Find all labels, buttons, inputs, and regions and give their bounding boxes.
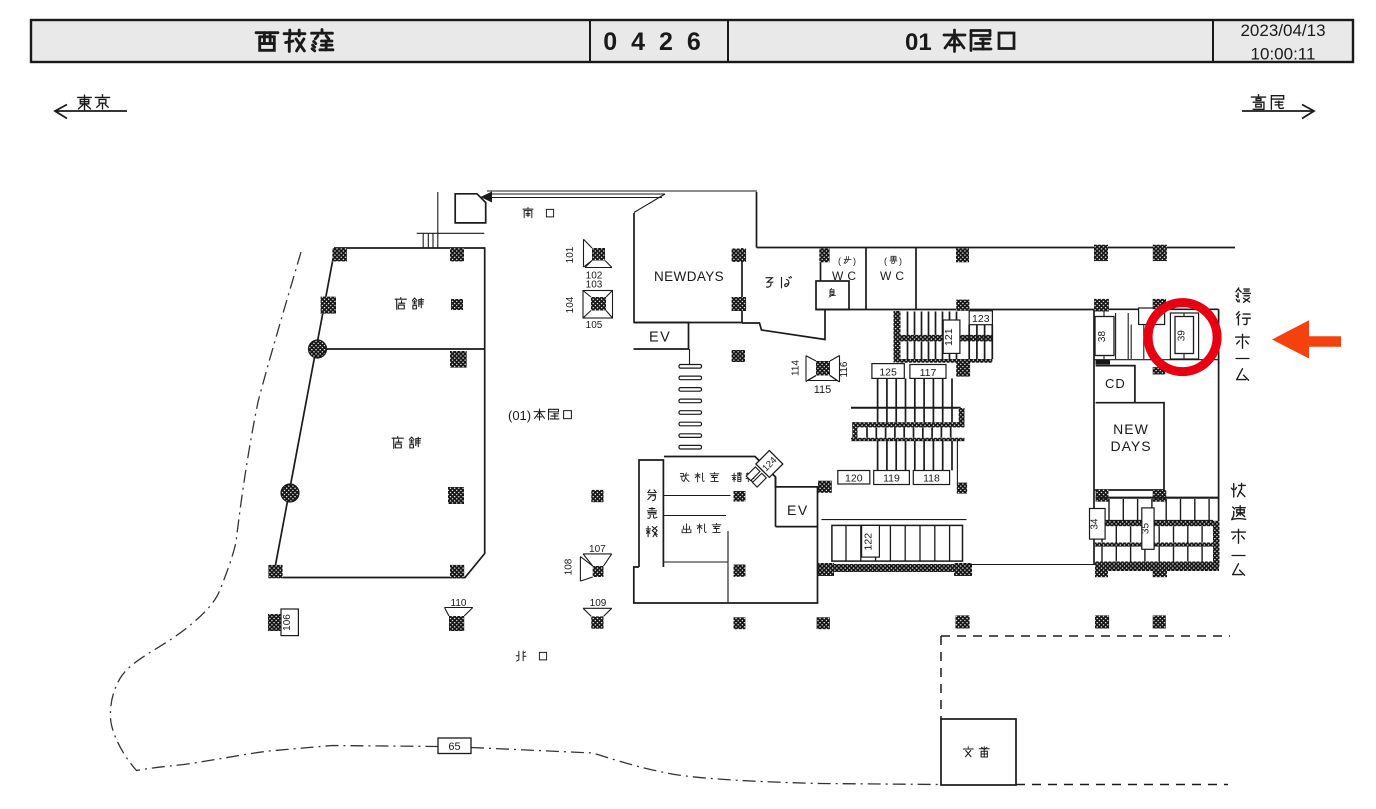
svg-text:34: 34: [1090, 518, 1101, 530]
svg-text:39: 39: [1177, 330, 1188, 342]
svg-text:105: 105: [586, 320, 603, 331]
svg-text:DAYS: DAYS: [1110, 438, 1151, 454]
svg-text:2023/04/13: 2023/04/13: [1240, 21, 1325, 40]
svg-text:01: 01: [905, 29, 932, 56]
svg-text:NEW: NEW: [1113, 421, 1149, 437]
svg-text:118: 118: [923, 473, 940, 485]
svg-text:108: 108: [564, 558, 575, 575]
svg-text:107: 107: [589, 544, 606, 555]
svg-text:(01): (01): [508, 408, 531, 423]
svg-text:122: 122: [862, 533, 874, 551]
svg-text:EV: EV: [649, 330, 671, 346]
svg-text:WC: WC: [880, 269, 908, 283]
svg-text:104: 104: [565, 296, 576, 313]
svg-text:119: 119: [883, 473, 900, 485]
svg-text:WC: WC: [832, 269, 860, 283]
svg-text:38: 38: [1097, 331, 1108, 343]
svg-text:114: 114: [791, 360, 802, 376]
svg-text:123: 123: [972, 313, 990, 325]
svg-text:35: 35: [1140, 523, 1151, 535]
svg-text:): ): [853, 256, 856, 266]
svg-text:): ): [899, 256, 902, 266]
svg-text:(: (: [884, 256, 887, 266]
svg-text:10:00:11: 10:00:11: [1251, 45, 1316, 64]
svg-text:0426: 0426: [603, 28, 715, 56]
svg-text:65: 65: [448, 741, 460, 753]
svg-text:EV: EV: [787, 502, 809, 518]
svg-text:106: 106: [282, 614, 293, 631]
svg-text:NEWDAYS: NEWDAYS: [654, 269, 724, 284]
svg-text:116: 116: [839, 361, 850, 377]
svg-text:CD: CD: [1105, 376, 1126, 391]
svg-text:109: 109: [590, 598, 607, 609]
svg-text:110: 110: [451, 598, 467, 609]
svg-text:115: 115: [814, 384, 832, 396]
svg-text:120: 120: [845, 473, 863, 485]
svg-text:101: 101: [565, 246, 576, 263]
svg-text:(: (: [838, 256, 841, 266]
svg-text:103: 103: [586, 280, 603, 291]
svg-text:117: 117: [920, 367, 937, 379]
svg-text:121: 121: [943, 328, 955, 346]
svg-text:125: 125: [879, 367, 897, 379]
